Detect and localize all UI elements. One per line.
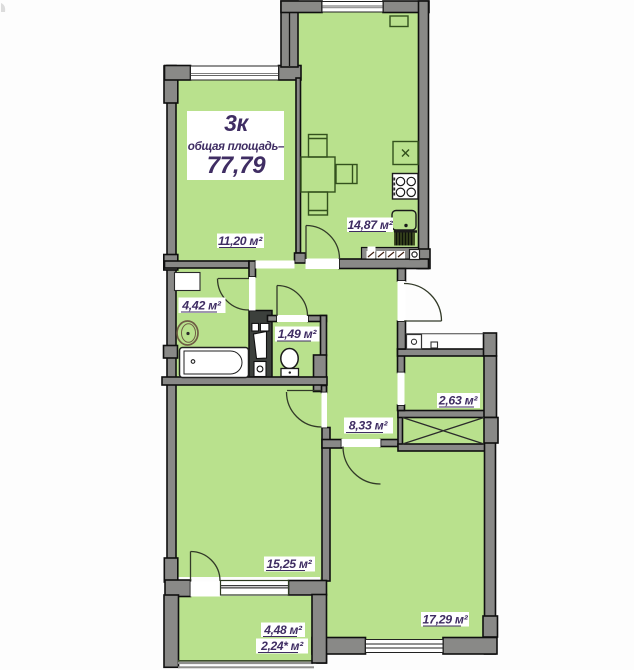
svg-text:4,48 м²: 4,48 м² [263, 623, 303, 637]
svg-text:4,42 м²: 4,42 м² [181, 299, 222, 313]
svg-text:2,63 м²: 2,63 м² [438, 394, 479, 408]
svg-text:14,87 м²: 14,87 м² [348, 218, 394, 232]
svg-text:8,33 м²: 8,33 м² [349, 419, 389, 433]
svg-text:17,29 м²: 17,29 м² [423, 613, 469, 627]
svg-text:2,24* м²: 2,24* м² [260, 639, 304, 653]
svg-text:3к: 3к [224, 110, 249, 136]
svg-text:1,49 м²: 1,49 м² [278, 327, 318, 341]
svg-text:11,20 м²: 11,20 м² [218, 234, 263, 248]
svg-text:15,25 м²: 15,25 м² [267, 557, 313, 571]
svg-text:77,79: 77,79 [207, 152, 267, 179]
